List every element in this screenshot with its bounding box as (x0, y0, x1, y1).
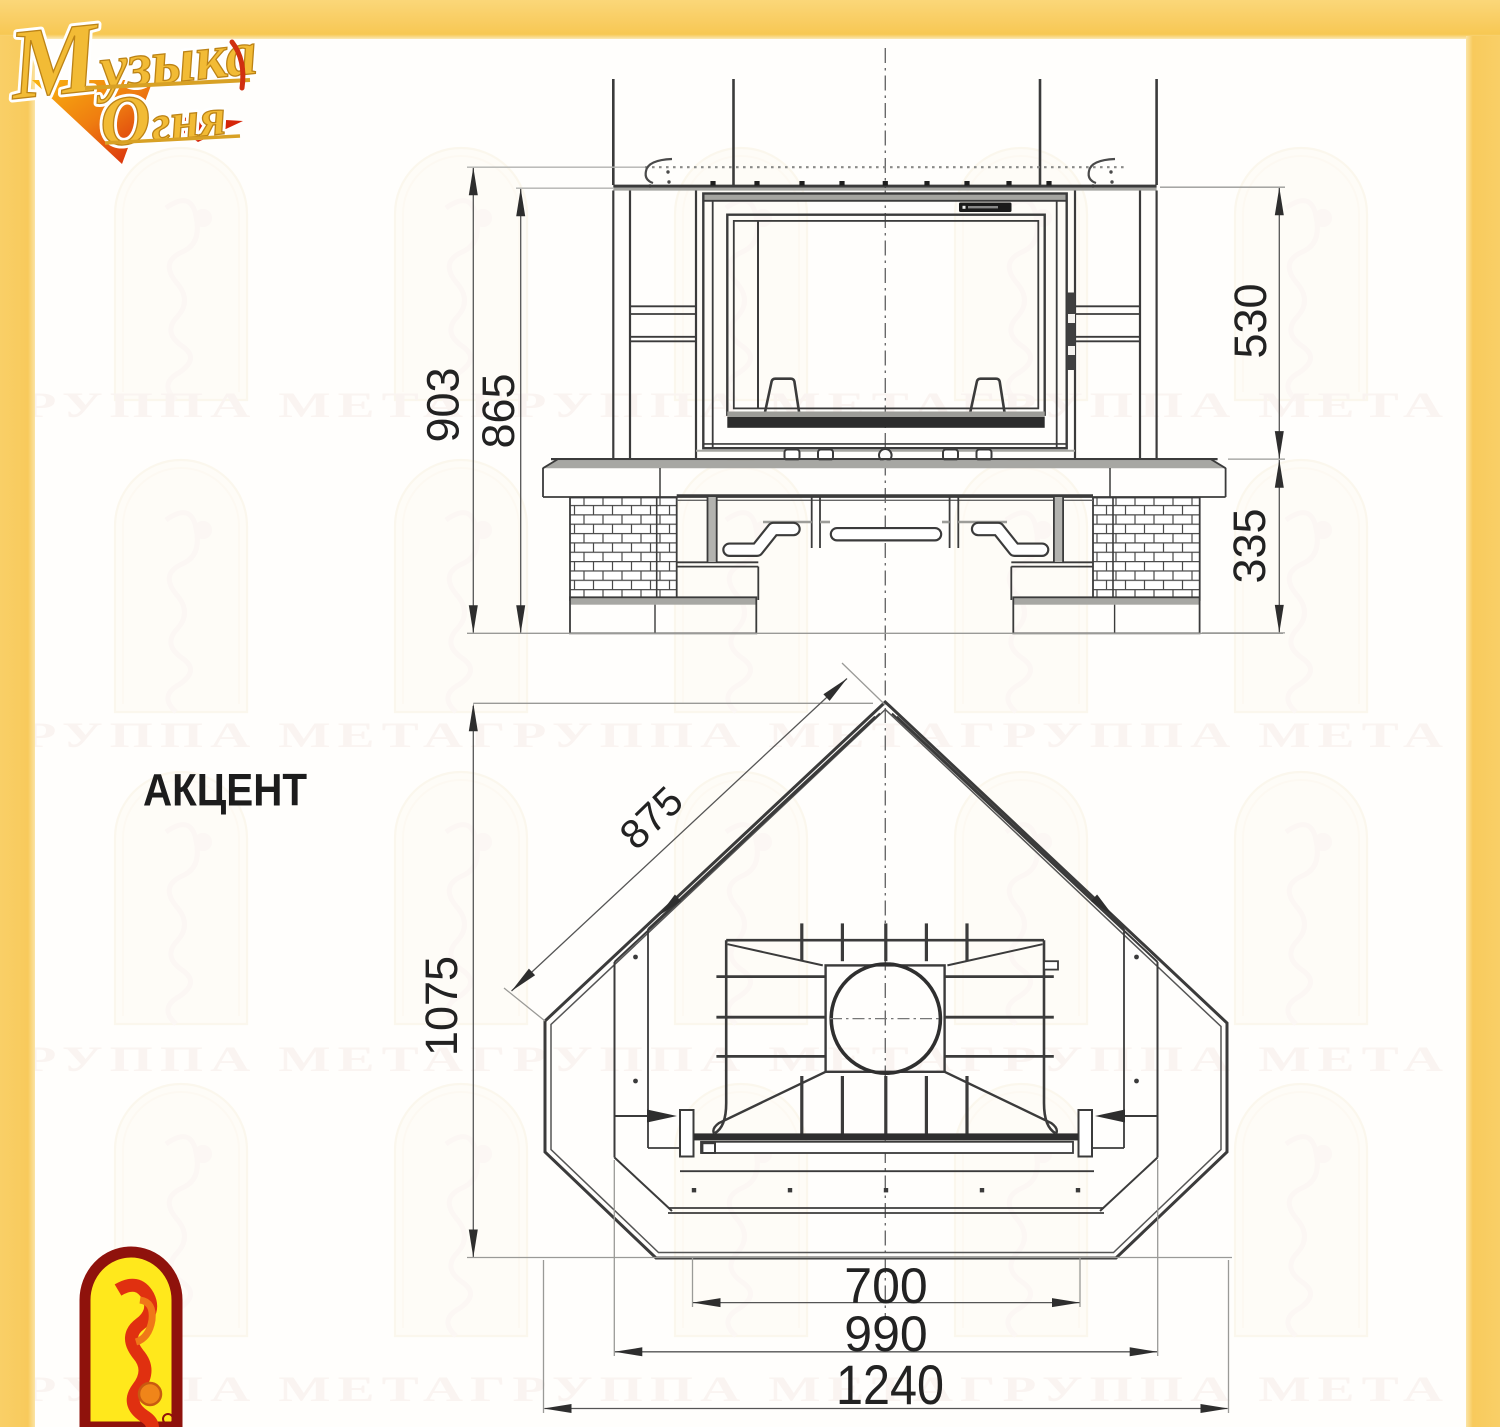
svg-text:530: 530 (1225, 283, 1276, 358)
svg-text:903: 903 (418, 367, 469, 442)
svg-text:1240: 1240 (836, 1353, 944, 1416)
svg-text:ГРУППА МЕТАГРУППА МЕТАГРУППА М: ГРУППА МЕТАГРУППА МЕТАГРУППА МЕТА (0, 715, 1450, 755)
svg-text:АКЦЕНТ: АКЦЕНТ (143, 765, 307, 816)
svg-text:ГРУППА МЕТАГРУППА МЕТАГРУППА М: ГРУППА МЕТАГРУППА МЕТАГРУППА МЕТА (0, 1369, 1450, 1409)
svg-text:865: 865 (473, 373, 524, 448)
svg-text:1075: 1075 (416, 956, 467, 1056)
svg-text:335: 335 (1224, 508, 1275, 583)
svg-text:ГРУППА МЕТАГРУППА МЕТАГРУППА М: ГРУППА МЕТАГРУППА МЕТАГРУППА МЕТА (0, 385, 1450, 425)
